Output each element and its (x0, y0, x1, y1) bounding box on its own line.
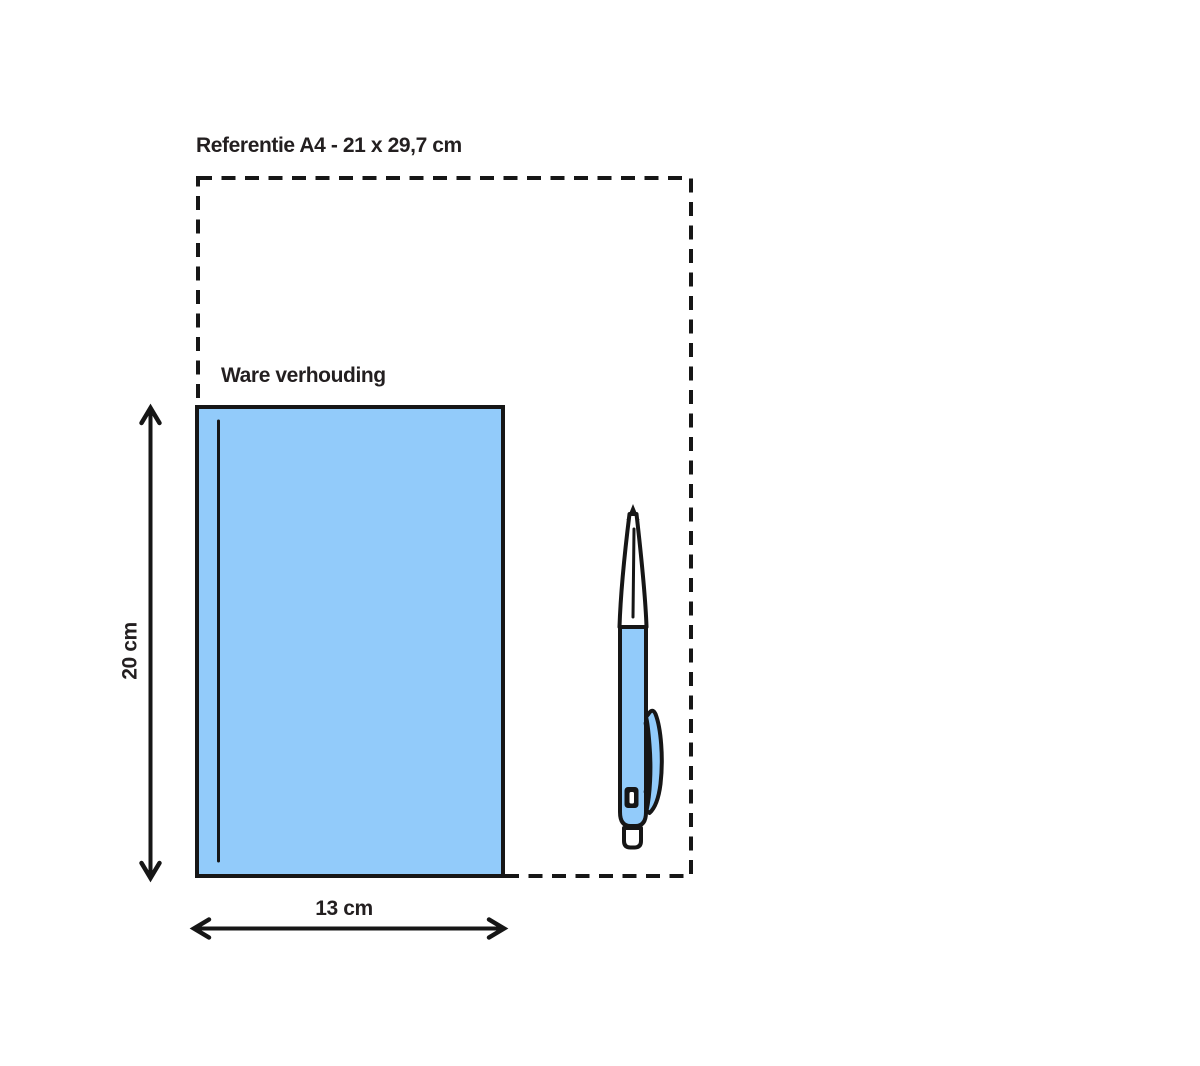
size-comparison-diagram: Referentie A4 - 21 x 29,7 cm Ware verhou… (0, 0, 1200, 1066)
book-cover-shape (197, 407, 503, 876)
pen-cone-seam-line (633, 529, 634, 617)
a4-reference-label: Referentie A4 - 21 x 29,7 cm (196, 133, 462, 158)
height-dimension-arrow (142, 408, 160, 878)
width-dimension-label: 13 cm (315, 896, 373, 921)
pen-illustration (620, 504, 662, 848)
pen-clip-mount-slot (630, 792, 635, 804)
true-scale-label: Ware verhouding (221, 363, 386, 388)
size-diagram-canvas (0, 0, 1200, 1066)
height-dimension-label: 20 cm (117, 622, 142, 680)
width-dimension-arrow (194, 920, 504, 938)
pen-push-button (624, 828, 641, 848)
